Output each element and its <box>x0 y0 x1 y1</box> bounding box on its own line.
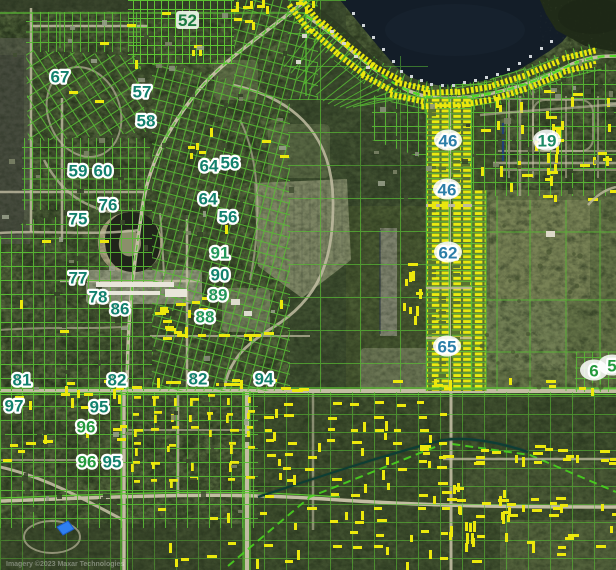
svg-text:90: 90 <box>211 266 230 285</box>
svg-text:5: 5 <box>607 357 616 376</box>
svg-text:86: 86 <box>111 300 130 319</box>
svg-text:95: 95 <box>103 453 122 472</box>
svg-text:88: 88 <box>196 308 215 327</box>
svg-text:46: 46 <box>439 132 458 151</box>
svg-text:Imagery ©2023 Maxar Technologi: Imagery ©2023 Maxar Technologies <box>6 560 124 568</box>
svg-text:96: 96 <box>77 418 96 437</box>
svg-text:97: 97 <box>5 397 24 416</box>
svg-text:67: 67 <box>51 68 70 87</box>
svg-text:19: 19 <box>538 132 557 151</box>
svg-text:60: 60 <box>94 162 113 181</box>
svg-text:46: 46 <box>438 181 457 200</box>
svg-text:59: 59 <box>69 162 88 181</box>
svg-text:64: 64 <box>200 157 219 176</box>
svg-text:76: 76 <box>99 196 118 215</box>
svg-text:81: 81 <box>13 371 32 390</box>
svg-text:91: 91 <box>211 244 230 263</box>
svg-text:82: 82 <box>108 371 127 390</box>
svg-text:56: 56 <box>221 154 240 173</box>
svg-text:78: 78 <box>89 288 108 307</box>
svg-text:62: 62 <box>439 244 458 263</box>
svg-text:65: 65 <box>438 338 457 357</box>
svg-text:57: 57 <box>133 83 152 102</box>
svg-text:94: 94 <box>255 370 274 389</box>
svg-text:56: 56 <box>219 208 238 227</box>
svg-text:95: 95 <box>90 398 109 417</box>
svg-text:58: 58 <box>137 112 156 131</box>
svg-text:6: 6 <box>589 362 598 381</box>
svg-text:96: 96 <box>78 453 97 472</box>
svg-text:75: 75 <box>69 210 88 229</box>
svg-text:89: 89 <box>209 286 228 305</box>
svg-text:82: 82 <box>189 370 208 389</box>
svg-text:64: 64 <box>199 190 218 209</box>
svg-text:77: 77 <box>69 269 88 288</box>
svg-text:52: 52 <box>178 11 197 30</box>
